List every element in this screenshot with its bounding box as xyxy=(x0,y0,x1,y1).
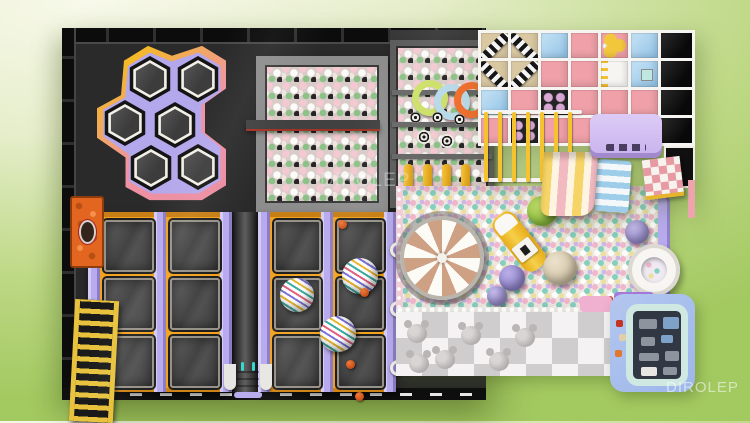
trampoline-mat xyxy=(274,220,321,272)
structure-cell-black xyxy=(661,118,692,143)
court-rail xyxy=(321,212,333,392)
wavy-slide xyxy=(540,152,598,216)
purple-platform xyxy=(590,114,662,158)
playground-render: DIROLEP DIROLEP xyxy=(0,0,750,421)
play-ball xyxy=(625,220,649,244)
bear-mat-tile xyxy=(458,320,484,346)
toy-block xyxy=(639,353,659,361)
entrance-steps xyxy=(224,364,272,398)
orange-ball xyxy=(355,392,364,401)
hoop-bar xyxy=(498,112,502,182)
peg xyxy=(241,362,244,371)
watermark-center: DIROLEP xyxy=(320,170,410,192)
spiral-target xyxy=(454,114,465,125)
spiral-target xyxy=(410,112,421,123)
toy-block xyxy=(641,337,655,346)
structure-cell-ladd xyxy=(601,61,628,86)
toy-block xyxy=(639,319,657,329)
playhouse-frame xyxy=(626,304,688,386)
zebra-roller xyxy=(511,61,538,86)
zebra-roller xyxy=(481,61,508,86)
trampoline-mat xyxy=(170,278,220,330)
trampoline-mat xyxy=(170,336,220,388)
entrance-base xyxy=(234,392,262,398)
playhouse-item xyxy=(615,350,622,357)
spiral-target xyxy=(432,112,443,123)
structure-pink-strip xyxy=(688,180,695,218)
entrance-rail xyxy=(260,364,272,390)
structure-cell-black xyxy=(661,33,692,58)
structure-cell-pink xyxy=(541,61,568,86)
structure-grid xyxy=(478,30,695,146)
spiral-target xyxy=(417,130,431,144)
trampoline-mat xyxy=(104,220,154,272)
hoop-bar xyxy=(512,112,516,182)
soft-play-structure xyxy=(478,30,695,216)
playhouse-item xyxy=(619,334,626,341)
bear-mat-tile xyxy=(404,318,430,344)
orange-ball xyxy=(360,288,369,297)
structure-cell-dotsy xyxy=(601,33,628,58)
structure-cell-zebra xyxy=(511,61,538,86)
toy-block xyxy=(665,351,679,361)
structure-cell-zebra xyxy=(481,33,508,58)
structure-cell-zebra xyxy=(511,33,538,58)
structure-cell-pink xyxy=(571,61,598,86)
toy-block xyxy=(663,367,677,375)
puzzle-mat-area xyxy=(396,312,642,376)
beach-ball xyxy=(320,316,356,352)
cross-beam xyxy=(392,122,492,127)
structure-cell-blue xyxy=(631,33,658,58)
watermark-bottom-right: DIROLEP xyxy=(666,379,739,396)
structure-cell-pink xyxy=(601,90,628,115)
ladder-prop xyxy=(69,299,119,423)
orange-ball xyxy=(338,220,347,229)
beach-ball xyxy=(342,258,378,294)
hexagon-trampoline-cluster xyxy=(98,48,234,198)
toy-block xyxy=(663,317,679,329)
peg xyxy=(252,362,255,371)
zebra-roller xyxy=(511,33,538,58)
checker-platform xyxy=(642,156,685,200)
cross-beam xyxy=(392,154,492,159)
structure-cell-pink xyxy=(631,90,658,115)
structure-cell-black xyxy=(661,61,692,86)
court-rail xyxy=(154,212,166,392)
spiral-target xyxy=(440,134,454,148)
bear-mat-tile xyxy=(406,348,432,374)
structure-cell-black xyxy=(661,90,692,115)
bear-mat-tile xyxy=(486,346,512,372)
spinning-bowl xyxy=(628,244,680,296)
carousel-spinner xyxy=(400,216,484,300)
play-ball xyxy=(543,251,577,285)
climb-ramp-blue xyxy=(594,159,632,213)
structure-cell-blue xyxy=(541,33,568,58)
playhouse-item xyxy=(616,320,623,327)
trampoline-mat xyxy=(170,220,220,272)
zebra-roller xyxy=(481,33,508,58)
structure-cell-blue xyxy=(631,61,658,86)
bear-mat-tile xyxy=(432,344,458,370)
beach-ball xyxy=(280,278,314,312)
floor-plan xyxy=(62,28,695,400)
rail xyxy=(482,110,582,114)
climbing-wall-panel xyxy=(70,196,104,268)
battle-beam xyxy=(246,120,380,129)
play-ball xyxy=(487,286,507,306)
hoop-bar xyxy=(526,112,530,182)
bear-mat-tile xyxy=(512,322,538,348)
structure-cell-pink xyxy=(571,33,598,58)
toy-block xyxy=(661,335,673,343)
toy-playhouse xyxy=(610,294,695,392)
trampoline-mat xyxy=(274,336,321,388)
toy-block xyxy=(641,367,657,376)
structure-cell-zebra xyxy=(481,61,508,86)
hoop-bar xyxy=(484,112,488,182)
entrance-rail xyxy=(224,364,236,390)
orange-ball xyxy=(346,360,355,369)
pink-mat xyxy=(580,296,612,312)
